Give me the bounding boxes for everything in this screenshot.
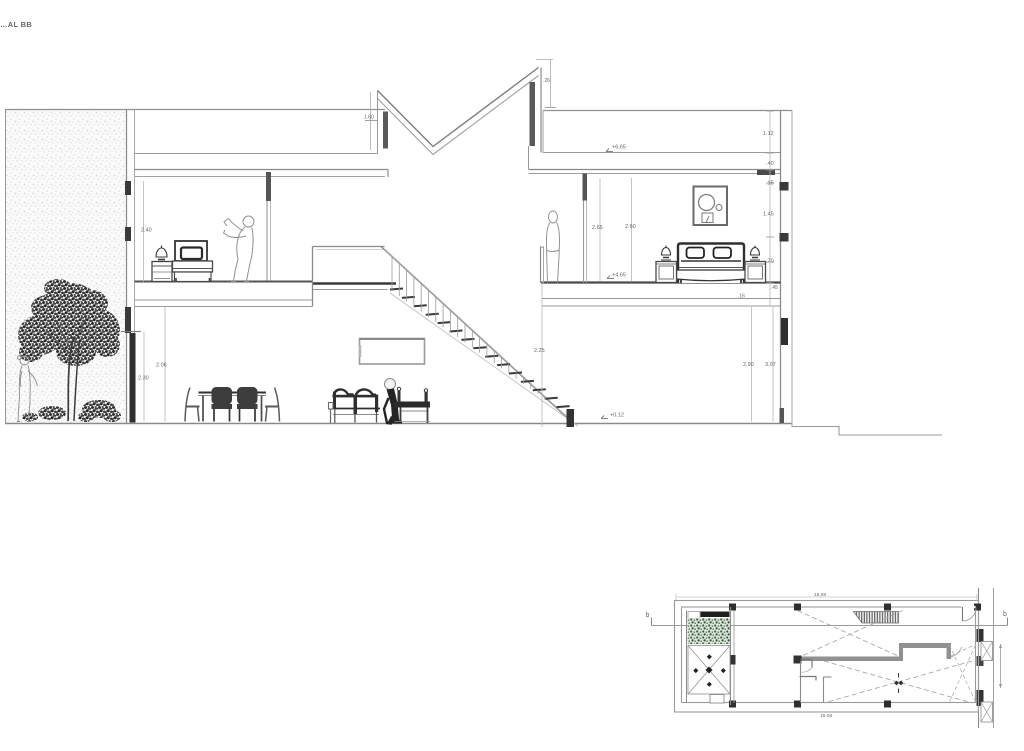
svg-text:15.08: 15.08 bbox=[814, 592, 826, 598]
svg-text:.40: .40 bbox=[766, 161, 774, 167]
svg-text:1.12: 1.12 bbox=[763, 131, 774, 137]
svg-text:+6.65: +6.65 bbox=[612, 145, 626, 151]
svg-text:1.60: 1.60 bbox=[364, 115, 374, 121]
svg-text:3.07: 3.07 bbox=[765, 362, 776, 368]
svg-text:.45: .45 bbox=[771, 285, 778, 291]
svg-text:2.25: 2.25 bbox=[534, 348, 545, 354]
svg-text:2.65: 2.65 bbox=[592, 225, 603, 231]
svg-text:.70: .70 bbox=[766, 259, 774, 265]
svg-text:1.45: 1.45 bbox=[763, 212, 774, 218]
svg-text:…AL BB: …AL BB bbox=[0, 20, 32, 29]
svg-text:2.06: 2.06 bbox=[156, 363, 167, 369]
svg-text:2.30: 2.30 bbox=[138, 376, 149, 382]
svg-text:2.90: 2.90 bbox=[743, 362, 754, 368]
svg-text:b: b bbox=[1003, 611, 1007, 618]
svg-text:15.08: 15.08 bbox=[820, 713, 832, 719]
svg-text:2.40: 2.40 bbox=[141, 228, 152, 234]
svg-text:2.60: 2.60 bbox=[625, 224, 636, 230]
svg-text:.26: .26 bbox=[543, 78, 550, 84]
svg-text:b: b bbox=[646, 612, 650, 619]
svg-text:+4.65: +4.65 bbox=[612, 273, 626, 279]
svg-text:.15: .15 bbox=[766, 181, 774, 187]
svg-text:+0.12: +0.12 bbox=[610, 413, 624, 419]
svg-text:.16: .16 bbox=[738, 294, 745, 300]
